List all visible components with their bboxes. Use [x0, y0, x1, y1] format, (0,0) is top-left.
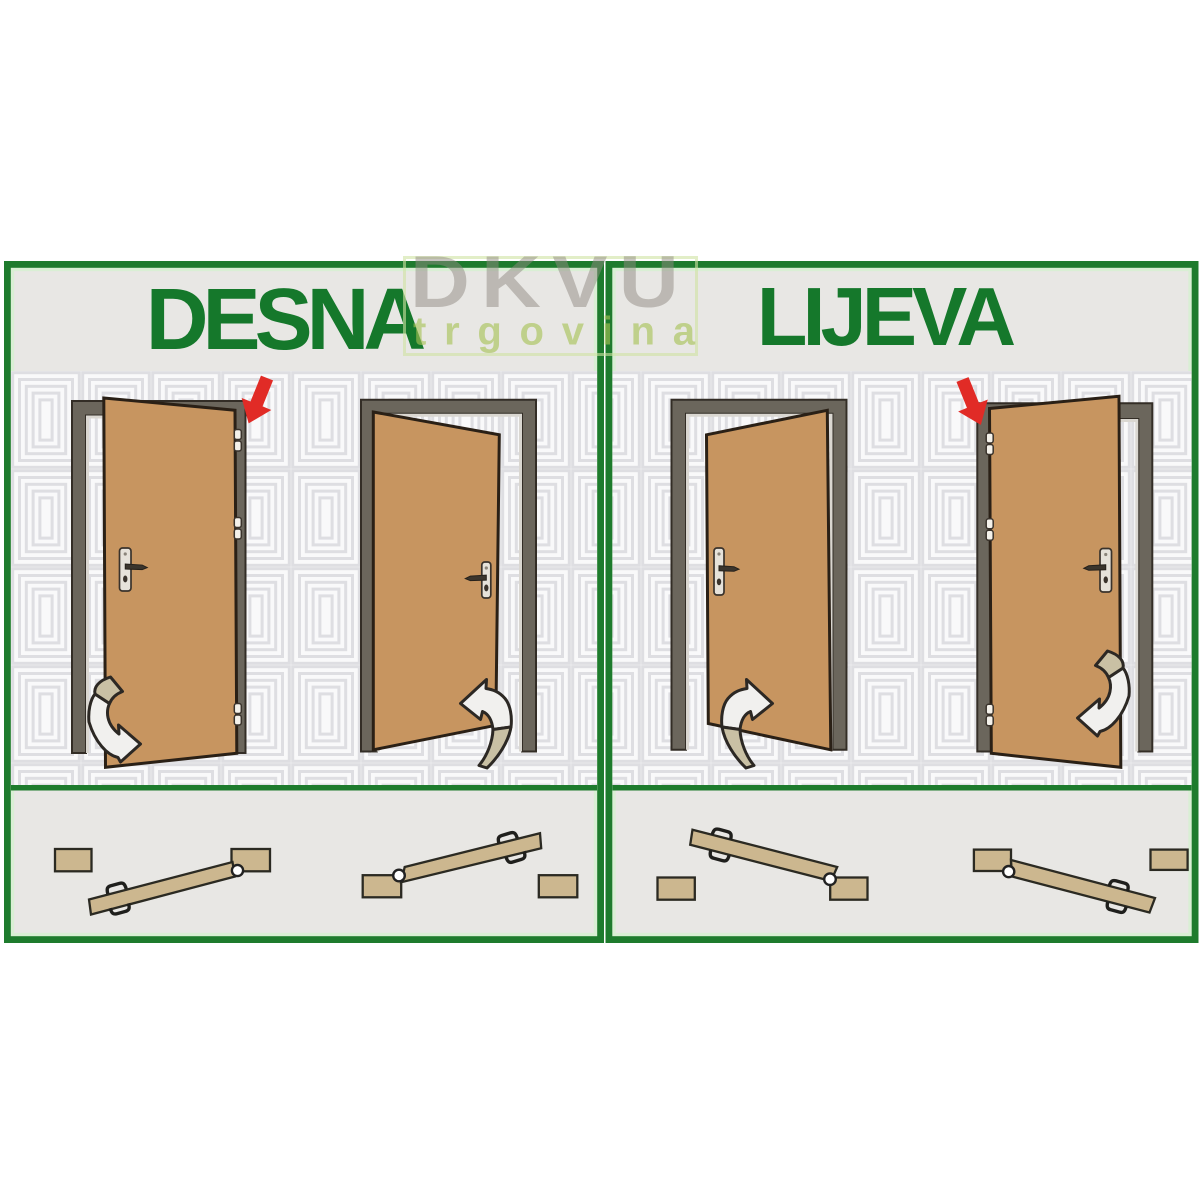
- svg-text:LIJEVA: LIJEVA: [757, 270, 1014, 363]
- svg-text:DESNA: DESNA: [146, 271, 425, 368]
